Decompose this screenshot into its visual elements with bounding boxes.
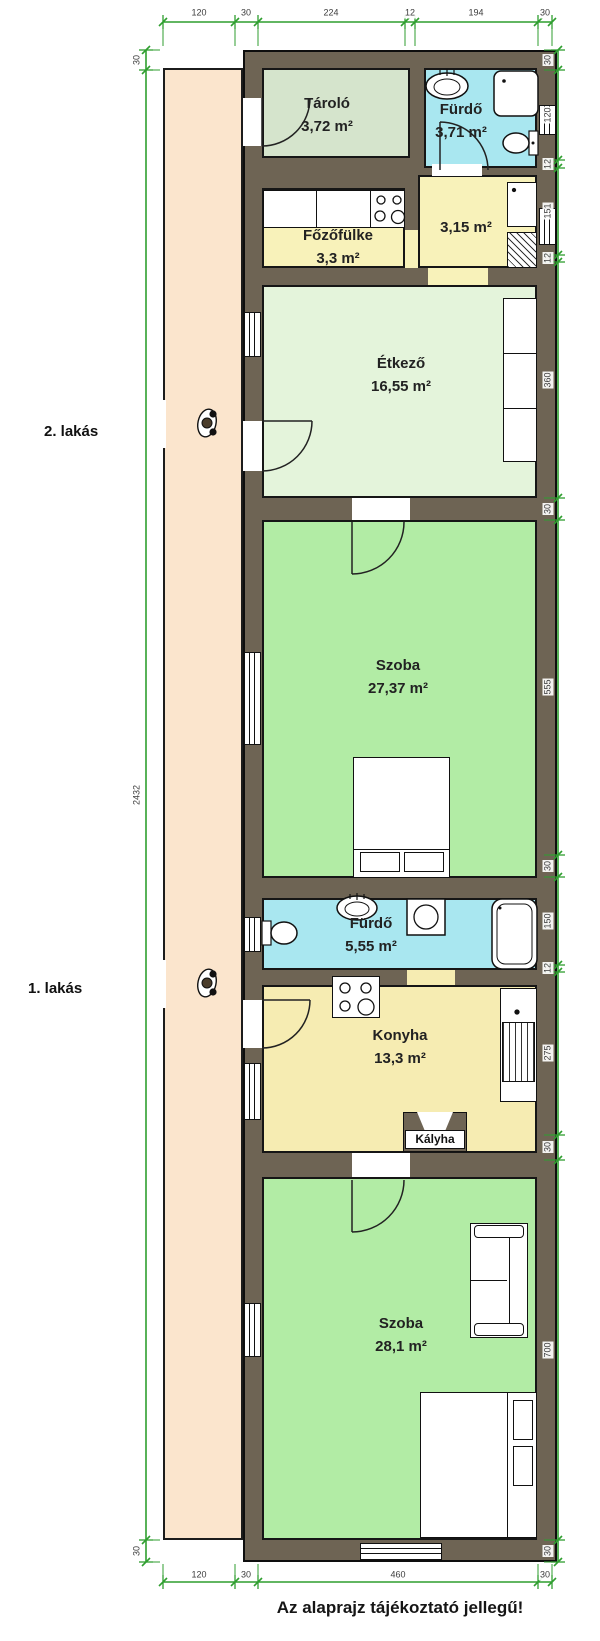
room-name: Konyha [372, 1024, 427, 1047]
veranda [163, 68, 243, 1540]
room-area: 3,3 m² [303, 247, 373, 270]
room-furdo-1 [262, 898, 537, 970]
passage-etkezo [428, 268, 488, 285]
door-opening-szoba1 [352, 1153, 410, 1177]
dimension-value: 150 [543, 912, 554, 929]
sofa-armrest [474, 1323, 524, 1336]
room-name: Fürdő [345, 912, 397, 935]
room-area: 3,72 m² [301, 115, 353, 138]
room-area: 27,37 m² [368, 677, 428, 700]
window [244, 312, 261, 357]
room-area: 3,71 m² [435, 121, 487, 144]
dimension-value: 30 [539, 8, 551, 19]
window [360, 1543, 442, 1560]
dimension-value: 30 [539, 1570, 551, 1581]
room-label-fozofulke: Főzőfülke 3,3 m² [303, 224, 373, 270]
room-label-furdo-1: Fürdő 5,55 m² [345, 912, 397, 958]
floor-plan-canvas: Kályha [0, 0, 600, 1641]
dimension-value: 30 [543, 503, 554, 515]
entrance-opening-lakas2 [160, 400, 166, 448]
dimension-value: 30 [240, 1570, 252, 1581]
dimension-value: 224 [322, 8, 339, 19]
stove-top [332, 976, 380, 1018]
room-label-helyiseg-315: 3,15 m² [440, 216, 492, 239]
dimension-value: 30 [240, 8, 252, 19]
room-name: Főzőfülke [303, 224, 373, 247]
dimension-value: 2432 [132, 784, 143, 806]
room-area: 28,1 m² [375, 1335, 427, 1358]
window [244, 1303, 261, 1357]
dimension-value: 360 [543, 371, 554, 388]
entrance-opening-lakas1 [160, 960, 166, 1008]
wardrobe [503, 298, 537, 462]
room-name: Szoba [368, 654, 428, 677]
dimension-value: 30 [543, 1545, 554, 1557]
dimension-value: 700 [543, 1341, 554, 1358]
door-opening-konyha [243, 1000, 262, 1048]
dimension-value: 120 [190, 1570, 207, 1581]
dimension-value: 120 [543, 106, 554, 123]
dimension-value: 12 [543, 962, 554, 974]
room-name: Szoba [375, 1312, 427, 1335]
room-label-tarolo: Tároló 3,72 m² [301, 92, 353, 138]
pillow [404, 852, 444, 872]
room-area: 5,55 m² [345, 935, 397, 958]
dimension-value: 460 [389, 1570, 406, 1581]
dimension-value: 30 [543, 860, 554, 872]
passage-furdo1 [407, 970, 455, 985]
door-opening-furdo2 [432, 164, 482, 176]
pillow [513, 1446, 533, 1486]
dimension-value: 194 [467, 8, 484, 19]
room-label-furdo-2: Fürdő 3,71 m² [435, 98, 487, 144]
sink-drainer [502, 1022, 535, 1082]
room-name: Fürdő [435, 98, 487, 121]
cabinet [507, 182, 537, 227]
passage-fozofulke [405, 230, 418, 268]
dimension-value: 120 [190, 8, 207, 19]
room-area: 13,3 m² [372, 1047, 427, 1070]
room-area: 3,15 m² [440, 216, 492, 239]
dimension-value: 30 [132, 1545, 143, 1557]
dimension-value: 12 [404, 8, 416, 19]
apartment-1-label: 1. lakás [28, 980, 82, 997]
dimension-value: 12 [543, 252, 554, 264]
stove-top [370, 190, 405, 228]
window [244, 1063, 261, 1120]
door-opening-tarolo [243, 98, 262, 146]
sofa-armrest [474, 1225, 524, 1238]
dimension-value: 30 [543, 1141, 554, 1153]
door-opening-etkezo [243, 421, 262, 471]
room-area: 16,55 m² [371, 375, 431, 398]
window [244, 917, 261, 952]
kalyha-label: Kályha [405, 1130, 465, 1149]
door-opening-szoba2 [352, 498, 410, 520]
room-label-etkezo: Étkező 16,55 m² [371, 352, 431, 398]
radiator [507, 232, 537, 268]
room-name: Étkező [371, 352, 431, 375]
caption: Az alaprajz tájékoztató jellegű! [200, 1598, 600, 1618]
room-label-konyha: Konyha 13,3 m² [372, 1024, 427, 1070]
sofa [470, 1223, 528, 1338]
pillow [513, 1400, 533, 1440]
room-label-szoba-1: Szoba 28,1 m² [375, 1312, 427, 1358]
dimension-value: 30 [543, 54, 554, 66]
dimension-value: 30 [132, 54, 143, 66]
dimension-value: 555 [543, 678, 554, 695]
dimension-value: 275 [543, 1044, 554, 1061]
room-label-szoba-2: Szoba 27,37 m² [368, 654, 428, 700]
window [244, 652, 261, 745]
apartment-2-label: 2. lakás [44, 423, 98, 440]
dimension-value: 12 [543, 158, 554, 170]
dimension-value: 151 [543, 202, 554, 219]
room-name: Tároló [301, 92, 353, 115]
pillow [360, 852, 400, 872]
